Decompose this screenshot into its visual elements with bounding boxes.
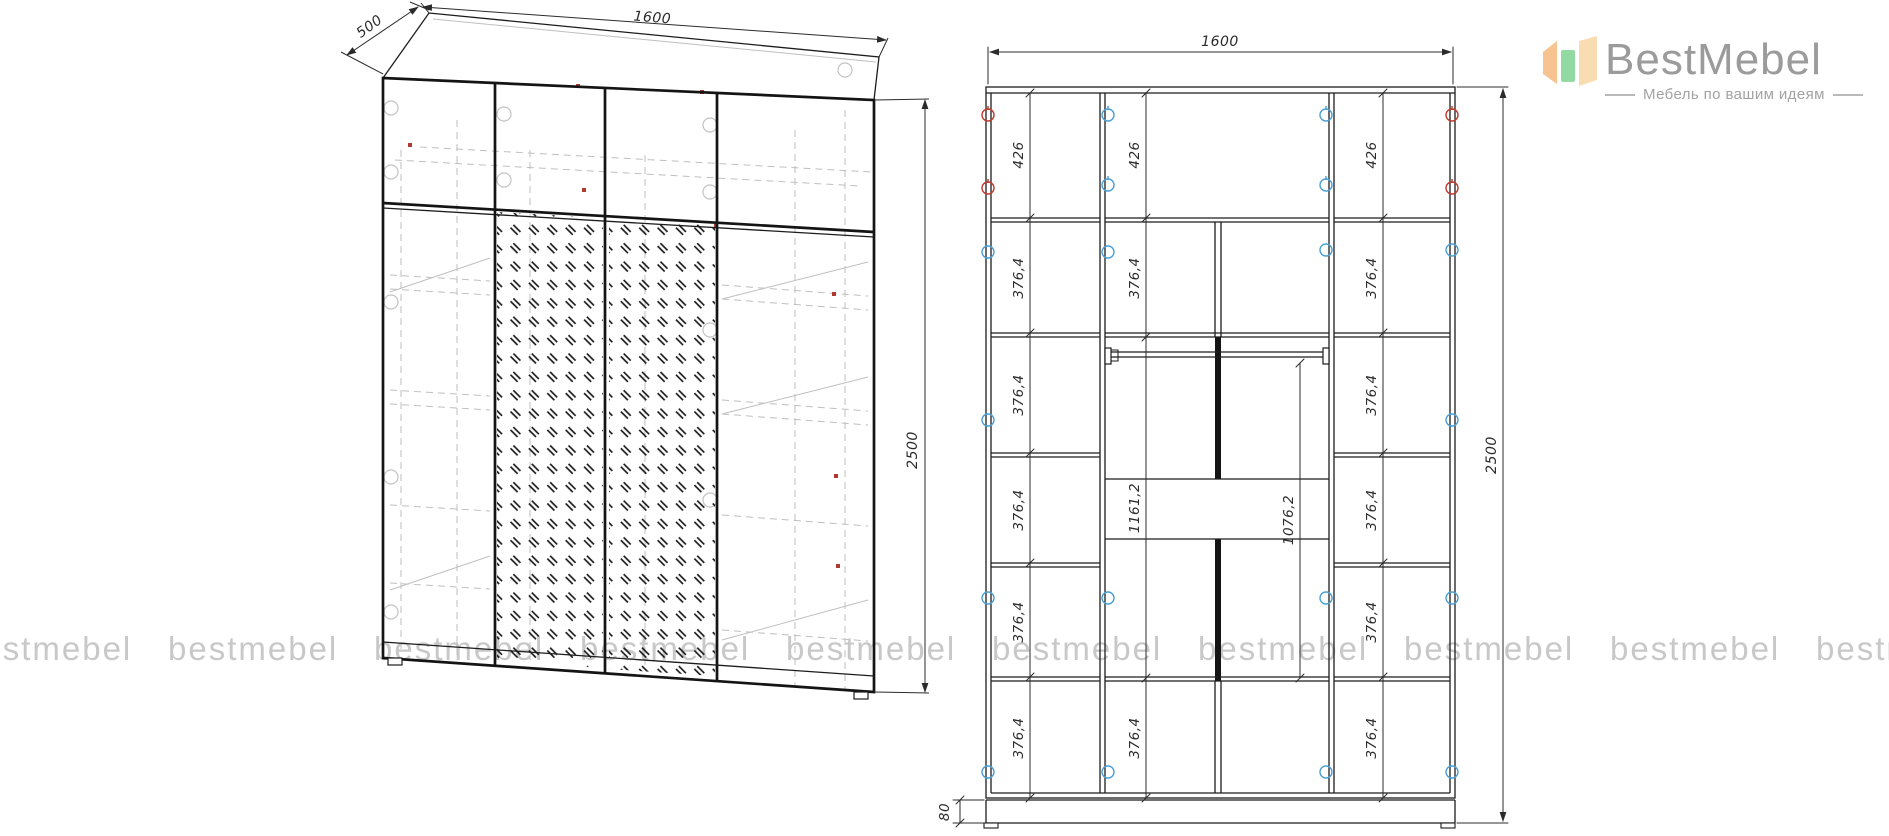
logo-icon — [1541, 36, 1599, 96]
dim-376-right-3: 376,4 — [1364, 489, 1380, 530]
dim-376-left-4: 376,4 — [1011, 601, 1027, 642]
dim-depth-500: 500 — [354, 12, 386, 42]
dim-height-2500-front: 2500 — [1484, 436, 1500, 474]
tagline-rule-right — [1833, 94, 1863, 96]
logo-tagline-row: Мебель по вашим идеям — [1605, 86, 1863, 103]
dim-426-middle: 426 — [1127, 141, 1143, 168]
blueprint-page: bestmebel bestmebel bestmebel bestmebel … — [0, 0, 1889, 836]
dim-376-left-3: 376,4 — [1011, 489, 1027, 530]
dim-1161-hanging: 1161,2 — [1127, 483, 1143, 533]
front-dimensions: 426 376,4 376,4 376,4 376,4 376,4 426 37… — [937, 34, 1508, 827]
logo-tagline-text: Мебель по вашим идеям — [1643, 86, 1825, 103]
dim-width-1600-perspective: 1600 — [633, 9, 672, 28]
perspective-view: 500 1600 2500 — [341, 2, 929, 699]
dim-376-right-5: 376,4 — [1364, 717, 1380, 758]
cam-markers-red — [982, 106, 1458, 194]
tagline-rule-left — [1605, 94, 1635, 96]
logo-brand-text: BestMebel — [1605, 36, 1863, 84]
wardrobe-drawing: 500 1600 2500 — [0, 0, 1889, 836]
dim-376-left-2: 376,4 — [1011, 374, 1027, 415]
left-column-shelves — [991, 218, 1100, 681]
dim-426-right: 426 — [1364, 141, 1380, 168]
dim-376-middle-2: 376,4 — [1127, 717, 1143, 758]
dim-376-right-4: 376,4 — [1364, 601, 1380, 642]
front-view: 426 376,4 376,4 376,4 376,4 376,4 426 37… — [937, 34, 1508, 828]
plinth — [984, 800, 1455, 828]
logo-text-block: BestMebel Мебель по вашим идеям — [1605, 36, 1863, 103]
dim-height-2500-perspective: 2500 — [905, 431, 921, 469]
dim-width-1600-front: 1600 — [1201, 34, 1239, 50]
dim-1076-hanging: 1076,2 — [1281, 495, 1297, 545]
dim-plinth-80: 80 — [937, 803, 953, 821]
dim-376-left-1: 376,4 — [1011, 257, 1027, 298]
logo: BestMebel Мебель по вашим идеям — [1541, 36, 1863, 103]
right-column-shelves — [1334, 218, 1450, 681]
front-carcass — [984, 87, 1455, 828]
dim-376-right-1: 376,4 — [1364, 257, 1380, 298]
dim-376-left-5: 376,4 — [1011, 717, 1027, 758]
dim-376-right-2: 376,4 — [1364, 374, 1380, 415]
dim-376-middle-1: 376,4 — [1127, 257, 1143, 298]
dim-426-left: 426 — [1011, 141, 1027, 168]
